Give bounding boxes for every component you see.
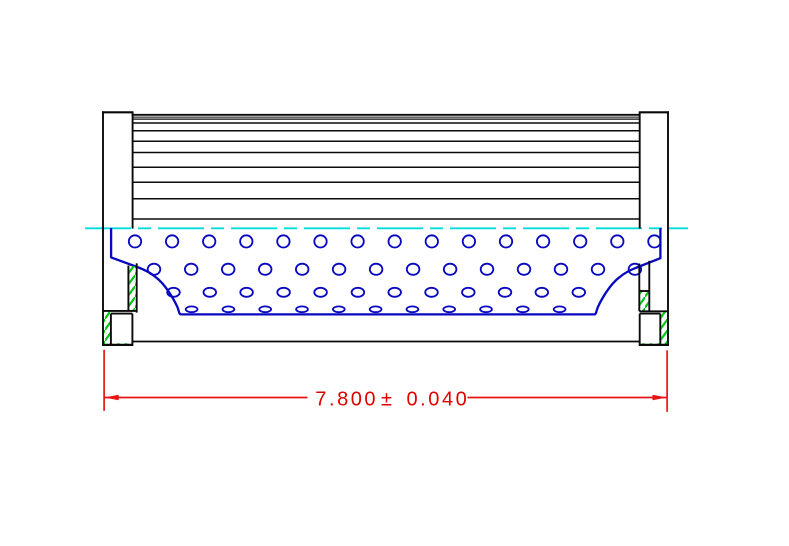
svg-text:7.800±0.040: 7.800±0.040 — [315, 388, 469, 410]
